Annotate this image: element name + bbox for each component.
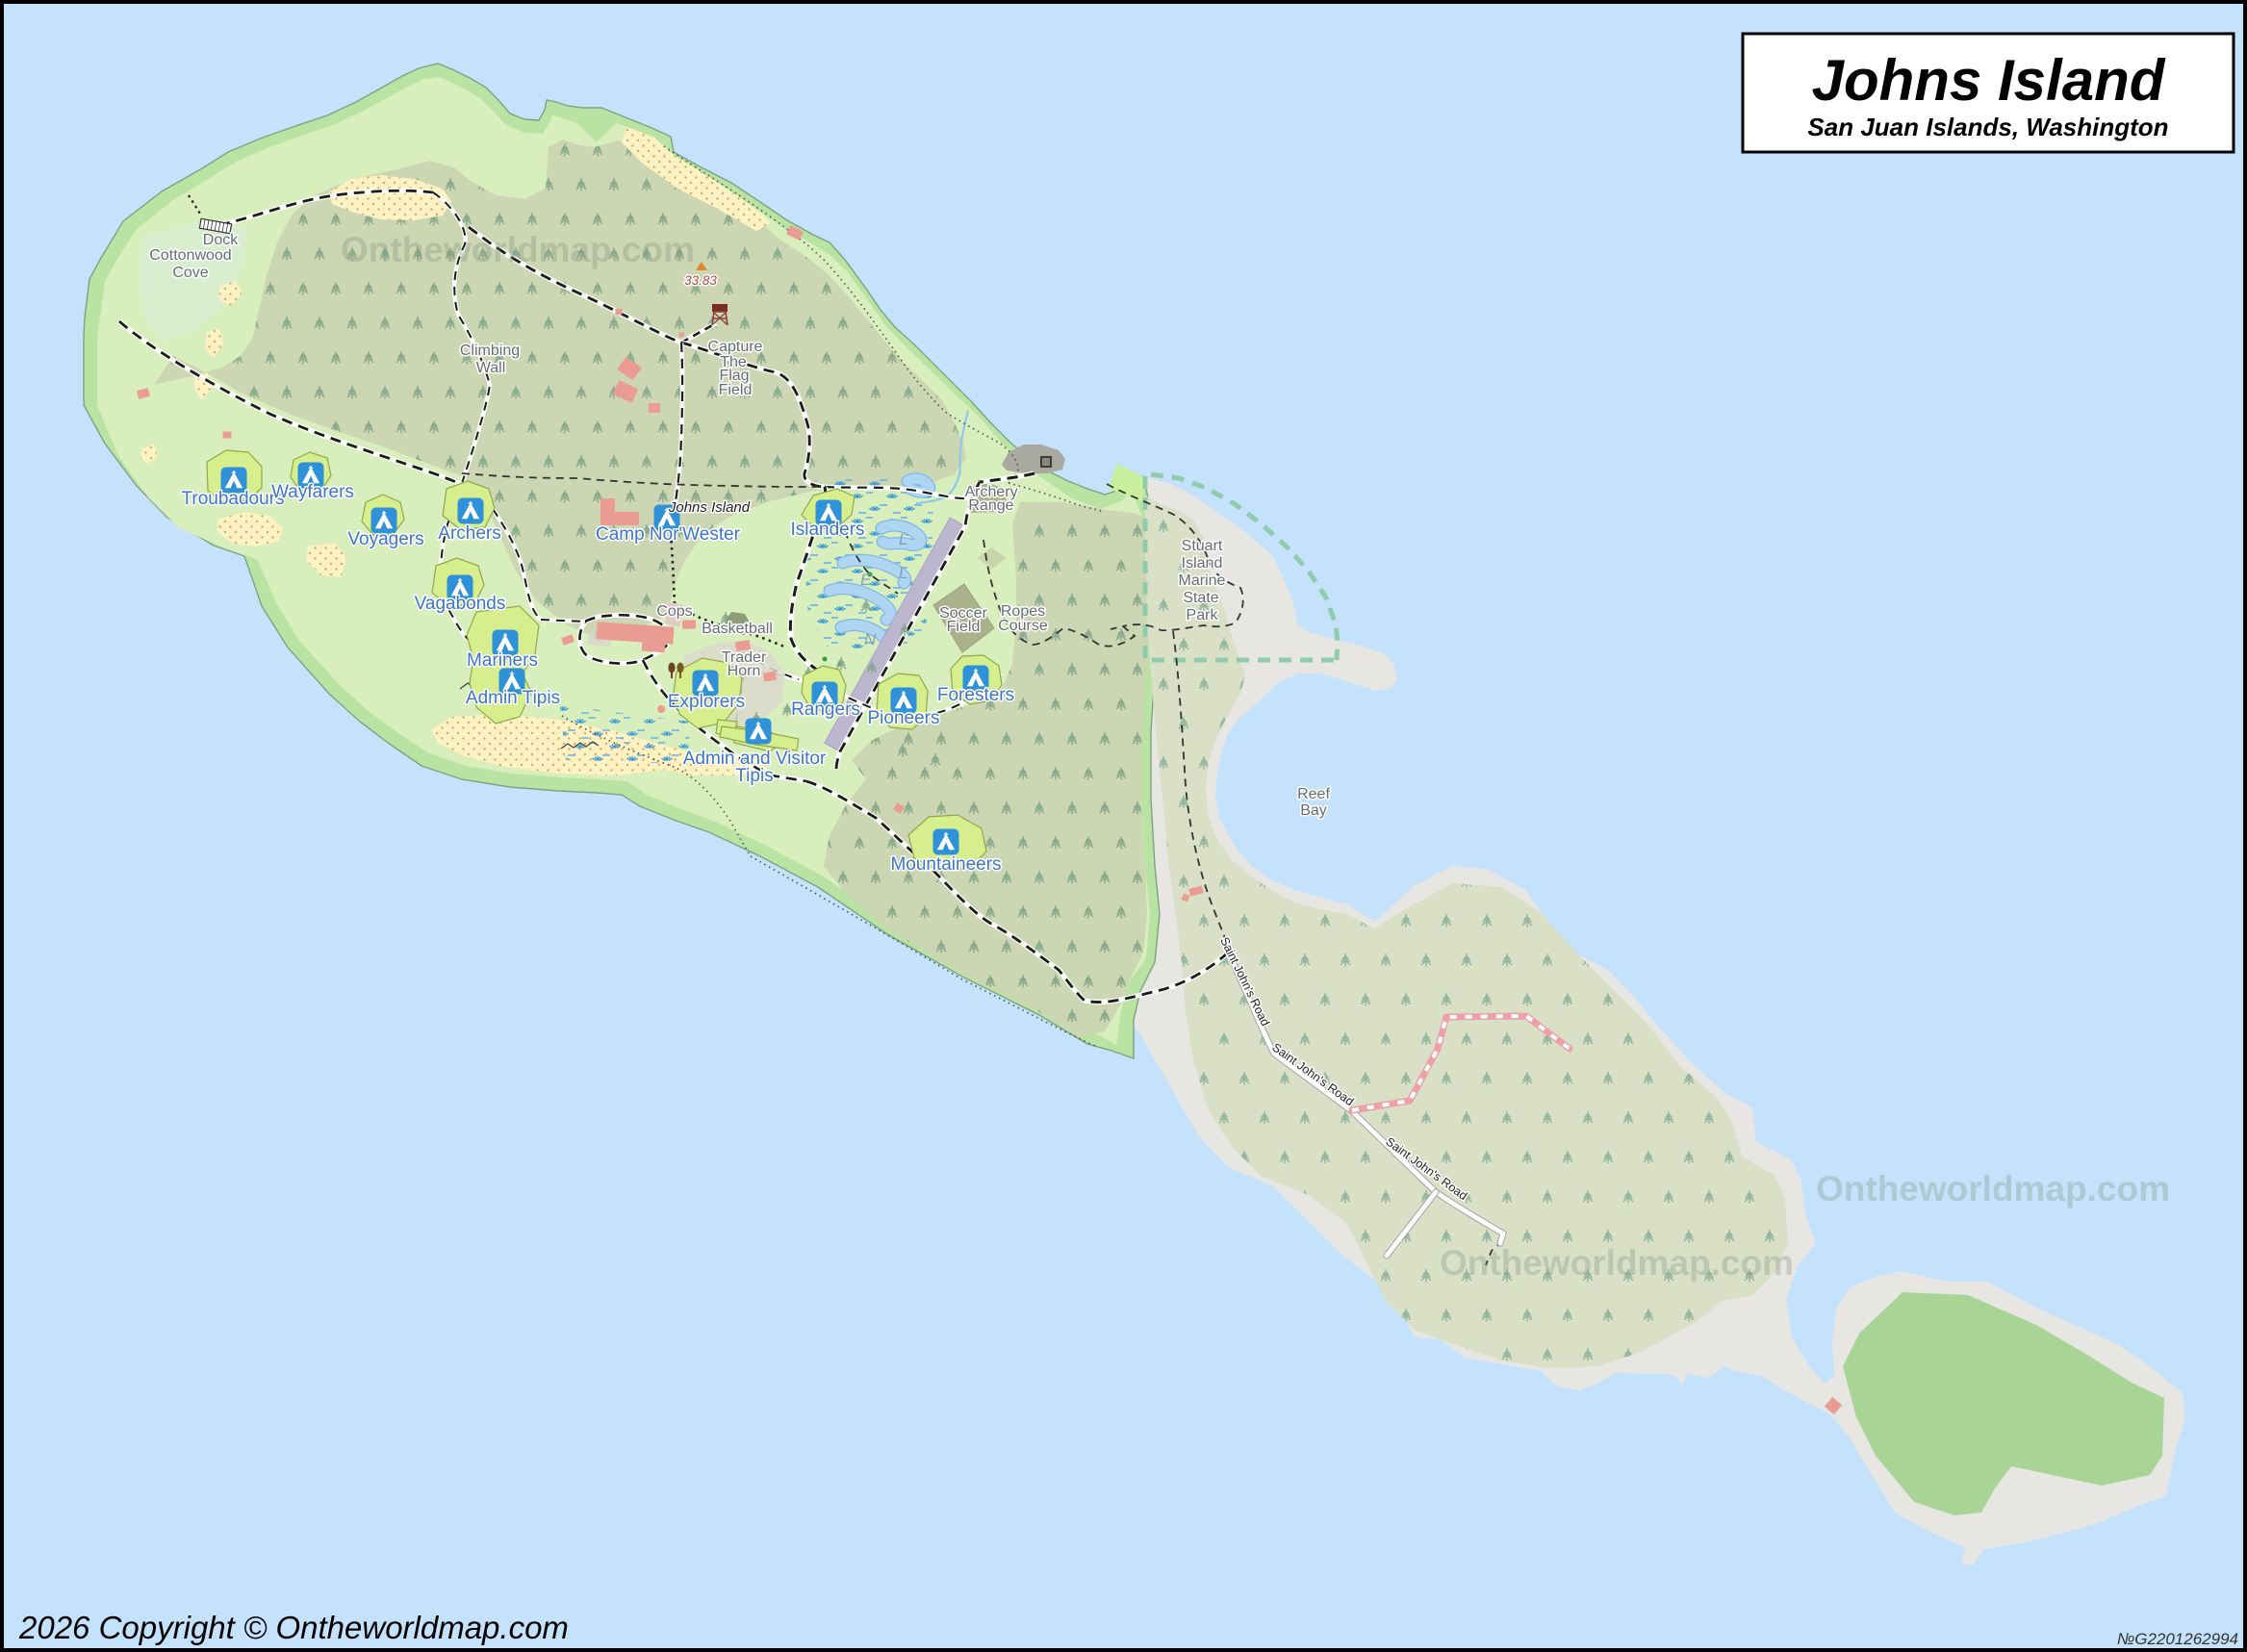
svg-text:Mariners: Mariners xyxy=(467,650,538,671)
svg-text:Archers: Archers xyxy=(438,523,500,544)
svg-text:Foresters: Foresters xyxy=(937,685,1014,705)
svg-text:Course: Course xyxy=(998,618,1048,634)
svg-text:Field: Field xyxy=(947,619,981,635)
svg-text:Ontheworldmap.com: Ontheworldmap.com xyxy=(1816,1169,2170,1208)
svg-text:Ontheworldmap.com: Ontheworldmap.com xyxy=(341,230,695,269)
svg-text:Camp Nor'Wester: Camp Nor'Wester xyxy=(596,524,741,545)
svg-text:Reef: Reef xyxy=(1297,786,1330,802)
svg-text:Marine: Marine xyxy=(1179,572,1226,589)
svg-text:Rangers: Rangers xyxy=(791,699,860,720)
svg-text:Explorers: Explorers xyxy=(668,692,745,712)
svg-text:Cops: Cops xyxy=(656,603,692,620)
svg-text:Wayfarers: Wayfarers xyxy=(271,482,354,502)
svg-text:Mountaineers: Mountaineers xyxy=(890,854,1001,875)
svg-text:Vagabonds: Vagabonds xyxy=(415,594,506,614)
svg-text:Wall: Wall xyxy=(476,360,506,376)
svg-text:L: L xyxy=(899,564,907,582)
svg-text:Johns Island: Johns Island xyxy=(1812,48,2166,113)
svg-text:Field: Field xyxy=(719,382,753,398)
svg-text:N: N xyxy=(864,630,877,648)
svg-text:L: L xyxy=(899,530,907,548)
svg-text:33.83: 33.83 xyxy=(684,273,717,288)
svg-text:Capture: Capture xyxy=(708,339,763,355)
svg-text:Dock: Dock xyxy=(203,232,239,248)
svg-text:Johns Island: Johns Island xyxy=(668,499,751,516)
svg-text:2026 Copyright © Ontheworldmap: 2026 Copyright © Ontheworldmap.com xyxy=(18,1610,569,1645)
svg-text:Range: Range xyxy=(968,497,1013,514)
svg-text:San Juan Islands, Washington: San Juan Islands, Washington xyxy=(1807,113,2168,141)
svg-text:Troubadours: Troubadours xyxy=(181,489,284,509)
svg-text:Tipis: Tipis xyxy=(735,766,773,786)
svg-text:Climbing: Climbing xyxy=(460,343,520,359)
svg-text:Cottonwood: Cottonwood xyxy=(149,247,231,264)
svg-text:E: E xyxy=(860,571,872,589)
svg-text:Pioneers: Pioneers xyxy=(868,708,940,728)
svg-text:№G2201262994: №G2201262994 xyxy=(2117,1630,2238,1648)
svg-text:Horn: Horn xyxy=(728,663,761,679)
svg-text:Basketball: Basketball xyxy=(702,621,773,637)
svg-text:Admin Tipis: Admin Tipis xyxy=(466,688,560,708)
svg-text:State: State xyxy=(1183,590,1218,606)
svg-text:Cove: Cove xyxy=(172,265,208,281)
svg-text:Stuart: Stuart xyxy=(1182,538,1223,554)
svg-text:Island: Island xyxy=(1182,555,1223,572)
svg-text:Islanders: Islanders xyxy=(790,520,864,540)
svg-text:Bay: Bay xyxy=(1300,802,1327,819)
svg-text:Voyagers: Voyagers xyxy=(347,529,423,549)
svg-text:Park: Park xyxy=(1187,607,1219,623)
svg-text:Ontheworldmap.com: Ontheworldmap.com xyxy=(1440,1243,1794,1283)
